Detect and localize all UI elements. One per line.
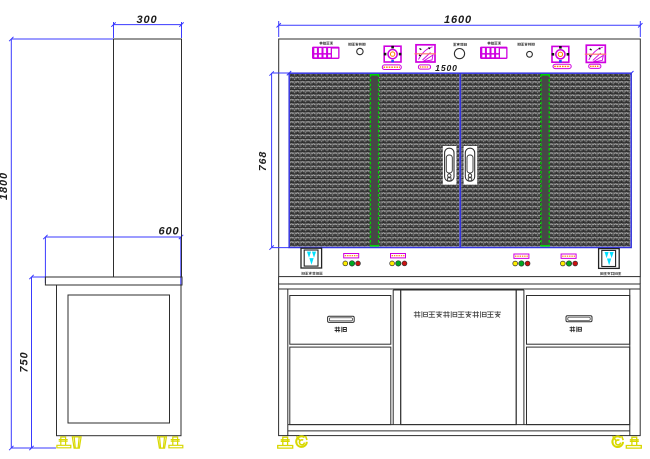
svg-text:768: 768 bbox=[257, 151, 269, 171]
svg-text:750: 750 bbox=[19, 351, 31, 372]
svg-text:1500: 1500 bbox=[435, 63, 458, 73]
svg-text:1800: 1800 bbox=[0, 172, 10, 200]
svg-text:600: 600 bbox=[158, 226, 179, 238]
svg-text:1600: 1600 bbox=[444, 14, 472, 26]
svg-text:300: 300 bbox=[136, 14, 157, 26]
